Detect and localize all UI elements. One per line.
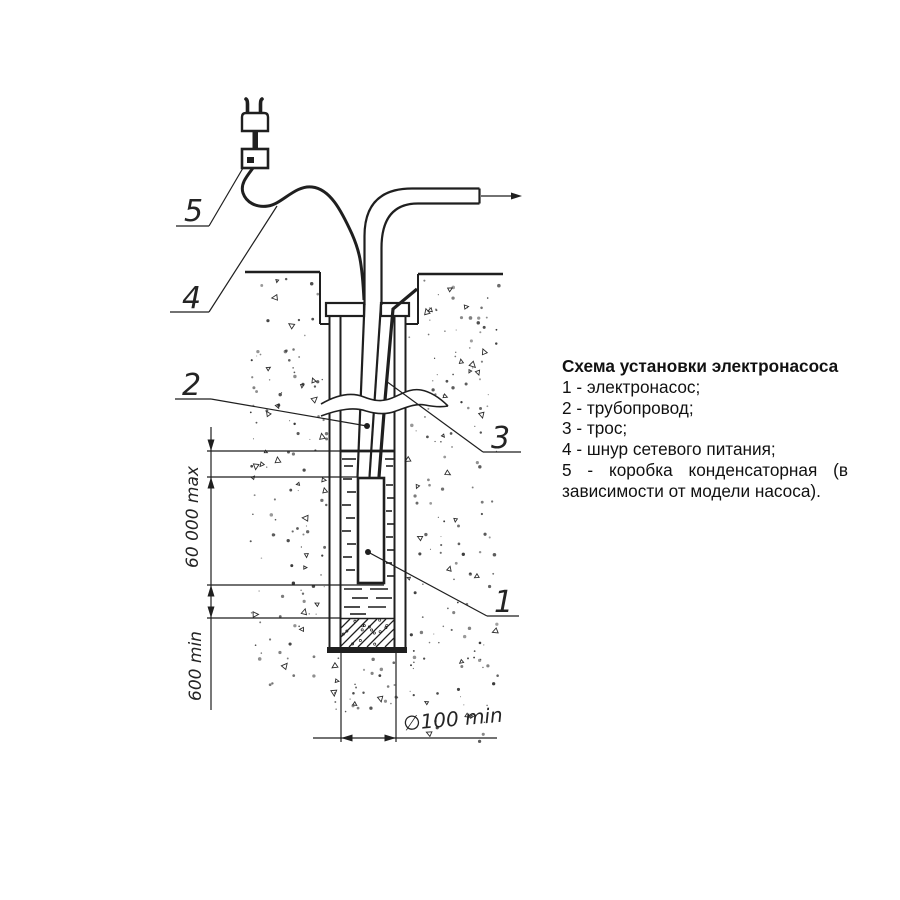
legend-line: 3 - трос; <box>562 418 848 439</box>
pump-outline <box>358 478 384 583</box>
leader-lines <box>170 168 521 616</box>
legend-lines: 1 - электронасос;2 - трубопровод;3 - тро… <box>562 377 848 502</box>
dimension-bottom-clearance: 600 min <box>186 631 206 701</box>
flow-arrow-icon <box>481 193 522 200</box>
legend-line: зависимости от модели насоса). <box>562 481 848 502</box>
legend-line: 1 - электронасос; <box>562 377 848 398</box>
label-pipe: 2 <box>182 368 201 403</box>
label-capacitor-box: 5 <box>184 194 203 229</box>
label-pump: 1 <box>494 585 513 620</box>
dimension-depth-max: 60 000 max <box>183 465 203 568</box>
label-cord: 4 <box>182 281 201 316</box>
scanned-diagram-page: 60 000 max 600 min ∅100 min 5 4 2 3 1 Сх… <box>0 0 900 900</box>
dimension-diameter-min: ∅100 min <box>402 703 503 736</box>
power-plug-icon <box>242 99 268 149</box>
outlet-pipe <box>365 189 480 306</box>
casing-bottom-plug <box>327 647 407 653</box>
legend-line: 2 - трубопровод; <box>562 398 848 419</box>
legend-title: Схема установки электронасоса <box>562 356 848 377</box>
power-cord <box>242 168 364 300</box>
ground-surface <box>245 272 503 324</box>
safety-rope <box>379 289 417 477</box>
legend-line: 4 - шнур сетевого питания; <box>562 439 848 460</box>
legend: Схема установки электронасоса 1 - электр… <box>562 356 848 502</box>
legend-line: 5 - коробка конденсаторная (в <box>562 460 848 481</box>
dimension-lines <box>207 427 497 742</box>
capacitor-box <box>242 149 268 168</box>
label-rope: 3 <box>491 421 510 456</box>
